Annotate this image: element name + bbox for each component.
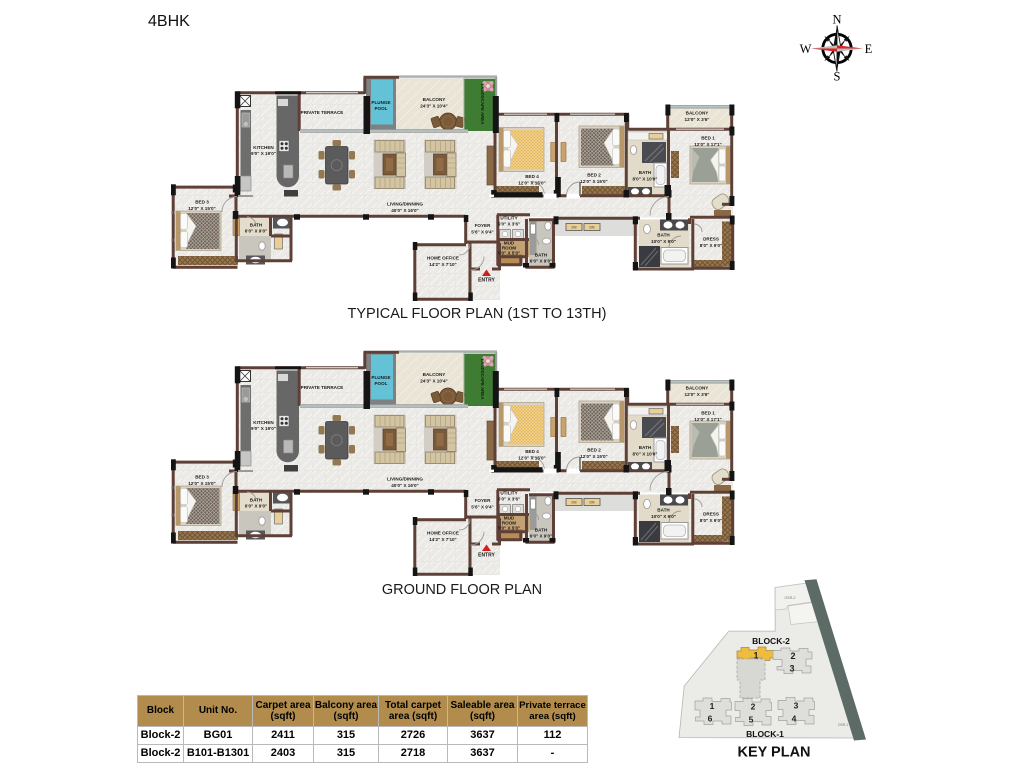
svg-text:OSR-2: OSR-2 [785, 596, 796, 600]
svg-text:S: S [834, 70, 841, 84]
svg-text:OSR-1: OSR-1 [838, 723, 848, 727]
svg-text:W: W [800, 42, 812, 56]
svg-text:1: 1 [710, 701, 715, 711]
svg-text:3: 3 [789, 664, 794, 674]
svg-text:2: 2 [790, 651, 795, 661]
svg-text:BLOCK-2: BLOCK-2 [752, 636, 790, 646]
svg-text:N: N [832, 13, 841, 27]
svg-text:5: 5 [749, 715, 754, 725]
svg-text:KEY PLAN: KEY PLAN [737, 745, 810, 761]
svg-text:6: 6 [708, 714, 713, 724]
svg-text:E: E [865, 42, 873, 56]
svg-text:3: 3 [794, 701, 799, 711]
svg-text:2: 2 [751, 702, 756, 712]
svg-text:BLOCK-1: BLOCK-1 [746, 729, 784, 739]
svg-text:4: 4 [792, 714, 797, 724]
